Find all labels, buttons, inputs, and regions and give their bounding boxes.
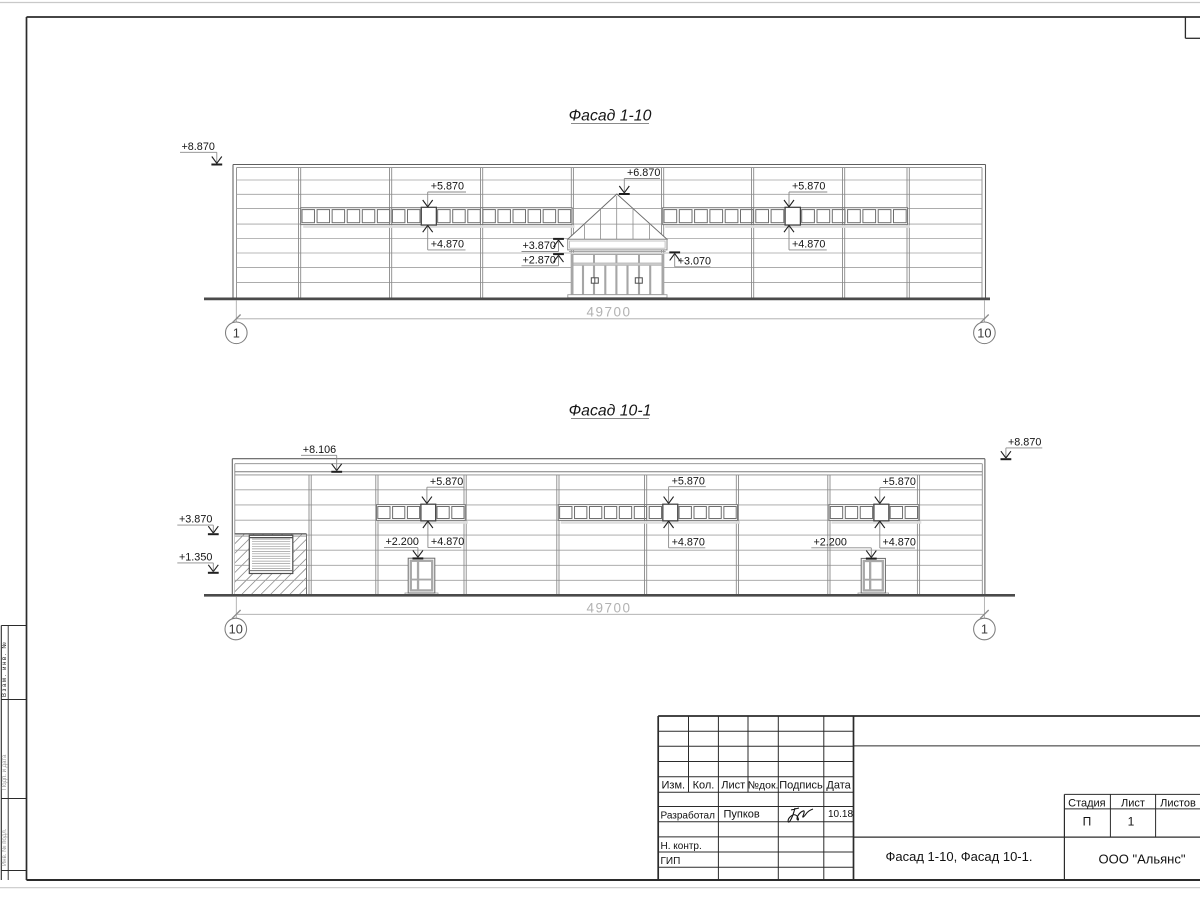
svg-text:ООО "Альянс": ООО "Альянс" (1099, 852, 1186, 867)
svg-text:+3.870: +3.870 (523, 240, 556, 252)
svg-text:№док.: №док. (748, 780, 779, 792)
svg-text:49700: 49700 (586, 601, 631, 616)
svg-text:+1.350: +1.350 (179, 552, 212, 564)
svg-text:+3.870: +3.870 (179, 514, 212, 526)
svg-text:Кол.: Кол. (693, 780, 715, 792)
svg-text:Фасад 1-10: Фасад 1-10 (569, 108, 652, 125)
svg-text:Разработал: Разработал (661, 809, 716, 821)
svg-text:Лист: Лист (1121, 797, 1145, 809)
svg-text:+4.870: +4.870 (431, 239, 464, 251)
svg-text:10: 10 (229, 622, 243, 637)
svg-text:Фасад 10-1: Фасад 10-1 (569, 403, 652, 420)
svg-text:10.18: 10.18 (828, 809, 853, 820)
svg-text:+8.870: +8.870 (182, 141, 215, 153)
svg-text:ГИП: ГИП (661, 856, 681, 867)
svg-text:+3.070: +3.070 (678, 255, 711, 267)
svg-text:+2.870: +2.870 (523, 254, 556, 266)
svg-text:+4.870: +4.870 (792, 239, 825, 251)
svg-text:+4.870: +4.870 (431, 536, 464, 548)
svg-text:Дата: Дата (826, 780, 851, 792)
svg-text:П: П (1083, 815, 1092, 829)
svg-text:Листов: Листов (1160, 797, 1196, 809)
svg-text:Изм.: Изм. (662, 780, 686, 792)
svg-text:49700: 49700 (586, 304, 631, 319)
svg-text:+5.870: +5.870 (792, 181, 825, 193)
svg-text:+4.870: +4.870 (672, 536, 705, 548)
svg-text:+5.870: +5.870 (672, 475, 705, 487)
svg-text:+4.870: +4.870 (883, 537, 916, 549)
svg-text:+5.870: +5.870 (431, 181, 464, 193)
svg-text:1: 1 (233, 325, 240, 340)
svg-text:1: 1 (981, 622, 988, 637)
svg-text:+8.106: +8.106 (303, 444, 336, 456)
svg-text:Пупков: Пупков (724, 809, 760, 821)
svg-text:Стадия: Стадия (1068, 797, 1106, 809)
svg-text:Взам. инв. №: Взам. инв. № (1, 641, 8, 697)
svg-text:+5.870: +5.870 (430, 476, 463, 488)
svg-text:Инв. № подл.: Инв. № подл. (1, 828, 8, 866)
svg-text:Подпись: Подпись (779, 780, 823, 792)
svg-text:Фасад 1-10, Фасад 10-1.: Фасад 1-10, Фасад 10-1. (886, 849, 1033, 864)
svg-text:10: 10 (977, 325, 991, 340)
svg-text:+2.200: +2.200 (386, 536, 419, 548)
svg-text:+5.870: +5.870 (883, 476, 916, 488)
svg-text:+8.870: +8.870 (1008, 437, 1041, 449)
svg-text:Н. контр.: Н. контр. (661, 841, 702, 852)
svg-text:+6.870: +6.870 (627, 167, 660, 179)
svg-text:+2.200: +2.200 (814, 536, 847, 548)
svg-text:Подп. и дата: Подп. и дата (2, 754, 8, 790)
svg-text:Лист: Лист (721, 780, 745, 792)
svg-text:1: 1 (1128, 815, 1135, 829)
